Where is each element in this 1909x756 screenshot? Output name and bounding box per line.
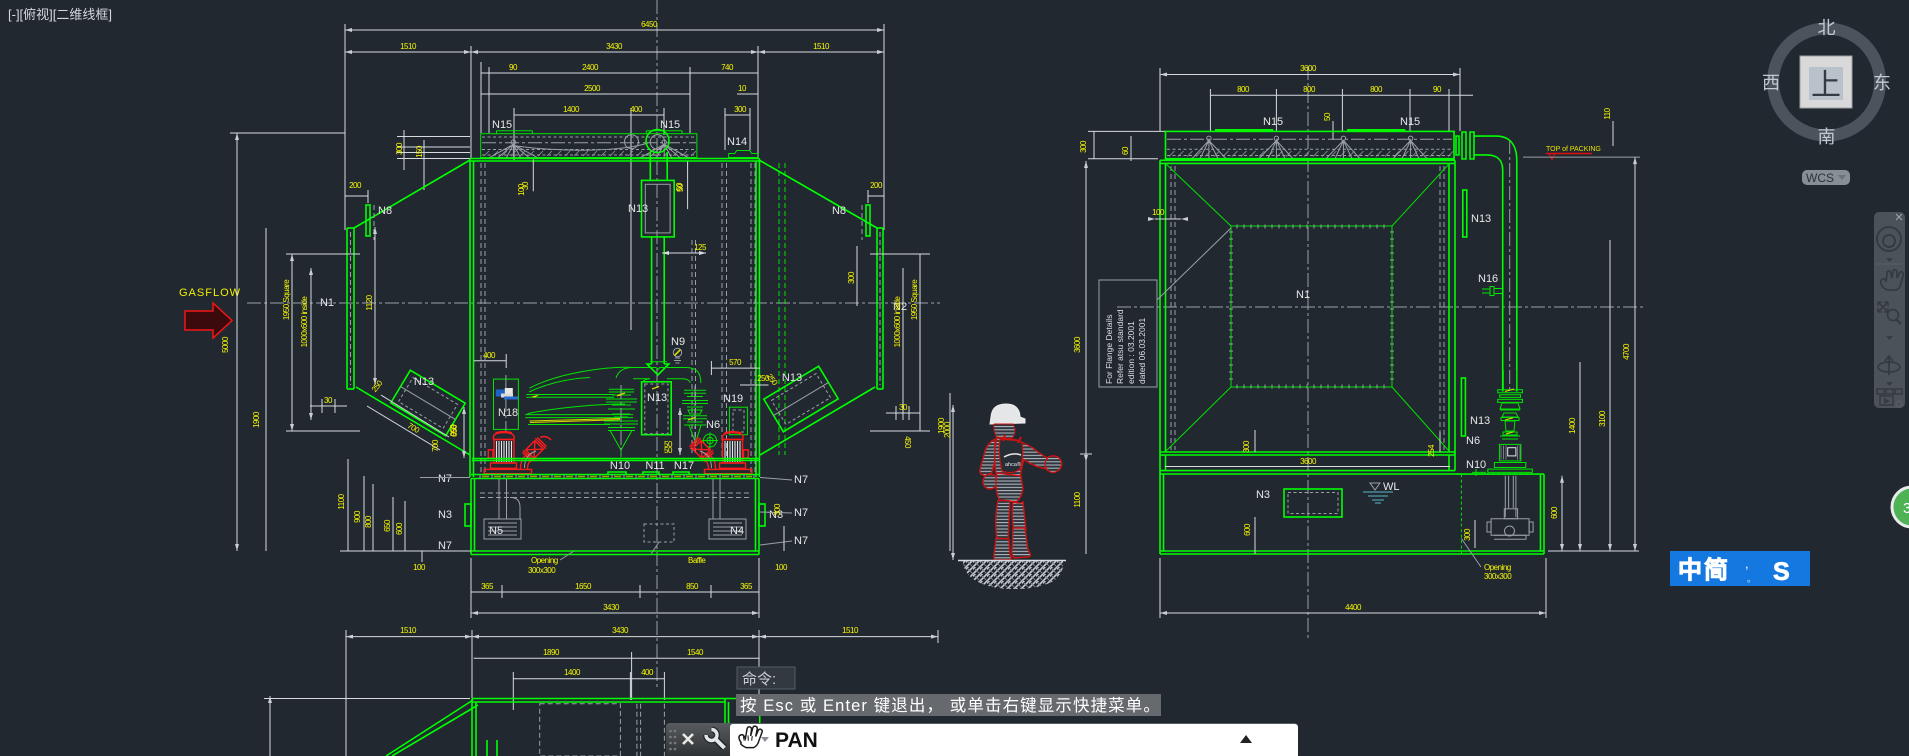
svg-text:30: 30 bbox=[521, 181, 530, 190]
svg-text:N7: N7 bbox=[794, 507, 808, 519]
svg-text:N7: N7 bbox=[794, 535, 808, 547]
svg-text:命令:: 命令: bbox=[742, 670, 776, 688]
svg-text:N13: N13 bbox=[647, 392, 667, 404]
svg-text:1540: 1540 bbox=[687, 648, 704, 657]
svg-text:N13: N13 bbox=[1471, 213, 1491, 225]
svg-text:Opening: Opening bbox=[1484, 563, 1511, 572]
svg-text:1120: 1120 bbox=[365, 294, 374, 310]
svg-text:N13: N13 bbox=[628, 203, 648, 215]
svg-text:1950 Square: 1950 Square bbox=[282, 279, 291, 320]
svg-text:3430: 3430 bbox=[612, 626, 629, 635]
svg-text:N10: N10 bbox=[610, 460, 630, 472]
svg-text:edition : 03.2001: edition : 03.2001 bbox=[1126, 321, 1136, 384]
svg-text:10: 10 bbox=[738, 84, 747, 93]
svg-text:800: 800 bbox=[1237, 85, 1250, 94]
svg-text:1100: 1100 bbox=[337, 493, 346, 509]
svg-text:300: 300 bbox=[734, 105, 747, 114]
svg-text:600: 600 bbox=[395, 522, 404, 535]
svg-text:650: 650 bbox=[450, 424, 459, 437]
svg-text:3430: 3430 bbox=[603, 603, 620, 612]
svg-text:按 Esc 或 Enter 键退出， 或单击右键显示快捷菜单: 按 Esc 或 Enter 键退出， 或单击右键显示快捷菜单。 bbox=[740, 696, 1161, 715]
svg-text:N7: N7 bbox=[438, 473, 452, 485]
svg-text:110: 110 bbox=[1603, 107, 1612, 119]
svg-text:N6: N6 bbox=[1466, 435, 1480, 447]
svg-text:300: 300 bbox=[395, 142, 404, 155]
svg-text:N15: N15 bbox=[660, 119, 680, 131]
svg-text:600: 600 bbox=[1550, 506, 1559, 519]
svg-text:3100: 3100 bbox=[1598, 410, 1607, 427]
svg-text:254: 254 bbox=[1427, 444, 1436, 457]
svg-text:400: 400 bbox=[630, 105, 643, 114]
svg-text:dated 06.03.2001: dated 06.03.2001 bbox=[1137, 318, 1147, 384]
svg-text:西: 西 bbox=[1762, 73, 1780, 93]
svg-text:N1: N1 bbox=[320, 297, 334, 309]
svg-text:Refer atsu standard: Refer atsu standard bbox=[1115, 309, 1125, 384]
svg-text:N5: N5 bbox=[489, 525, 503, 537]
svg-text:N13: N13 bbox=[1470, 415, 1490, 427]
svg-text:1950 Square: 1950 Square bbox=[910, 279, 919, 320]
svg-text:365: 365 bbox=[481, 582, 494, 591]
svg-text:600: 600 bbox=[1243, 523, 1252, 536]
svg-text:3: 3 bbox=[1903, 500, 1909, 517]
svg-text:1510: 1510 bbox=[400, 42, 417, 51]
svg-text:Baffle: Baffle bbox=[688, 556, 706, 565]
svg-text:Opening: Opening bbox=[531, 556, 558, 565]
svg-text:5000: 5000 bbox=[221, 336, 230, 353]
svg-text:800: 800 bbox=[364, 515, 373, 528]
svg-text:N4: N4 bbox=[730, 525, 744, 537]
svg-text:1890: 1890 bbox=[543, 648, 560, 657]
svg-text:S: S bbox=[1773, 558, 1790, 586]
svg-text:For Flange Details: For Flange Details bbox=[1104, 315, 1114, 384]
svg-text:1400: 1400 bbox=[563, 105, 580, 114]
svg-text:N7: N7 bbox=[794, 474, 808, 486]
svg-text:2500: 2500 bbox=[584, 84, 601, 93]
svg-text:N15: N15 bbox=[1263, 116, 1283, 128]
svg-text:北: 北 bbox=[1818, 18, 1836, 38]
svg-text:PAN: PAN bbox=[775, 729, 818, 752]
svg-text:1510: 1510 bbox=[842, 626, 859, 635]
svg-text:N3: N3 bbox=[1256, 489, 1270, 501]
svg-text:3430: 3430 bbox=[606, 42, 623, 51]
svg-text:,: , bbox=[1745, 556, 1749, 571]
svg-text:400: 400 bbox=[641, 668, 654, 677]
svg-text:3600: 3600 bbox=[1073, 336, 1082, 353]
svg-text:700: 700 bbox=[431, 439, 440, 452]
svg-text:90: 90 bbox=[1433, 85, 1442, 94]
svg-text:N8: N8 bbox=[832, 205, 846, 217]
svg-text:365: 365 bbox=[740, 582, 753, 591]
svg-text:30: 30 bbox=[324, 396, 333, 405]
svg-text:850: 850 bbox=[686, 582, 699, 591]
svg-text:1900: 1900 bbox=[252, 411, 261, 428]
svg-text:50: 50 bbox=[664, 446, 673, 455]
svg-text:900: 900 bbox=[353, 510, 362, 523]
svg-text:300: 300 bbox=[847, 271, 856, 284]
svg-text:50: 50 bbox=[675, 182, 684, 191]
svg-text:1400: 1400 bbox=[564, 668, 581, 677]
svg-text:N16: N16 bbox=[1478, 273, 1498, 285]
svg-text:50: 50 bbox=[1323, 112, 1332, 121]
svg-text:300: 300 bbox=[773, 503, 782, 516]
svg-text:650: 650 bbox=[383, 519, 392, 532]
svg-text:1400: 1400 bbox=[1568, 417, 1577, 434]
svg-text:300: 300 bbox=[1079, 140, 1088, 153]
svg-text:90: 90 bbox=[509, 63, 518, 72]
svg-text:TOP of PACKING: TOP of PACKING bbox=[1546, 146, 1601, 153]
svg-text:30: 30 bbox=[899, 403, 908, 412]
svg-text:3600: 3600 bbox=[1300, 457, 1317, 466]
svg-text:800: 800 bbox=[1303, 85, 1316, 94]
svg-text:200: 200 bbox=[349, 181, 362, 190]
svg-text:2400: 2400 bbox=[582, 63, 599, 72]
svg-text:。: 。 bbox=[1747, 574, 1756, 584]
svg-text:1650: 1650 bbox=[575, 582, 592, 591]
svg-text:100: 100 bbox=[413, 563, 426, 572]
svg-text:1000x600 inside: 1000x600 inside bbox=[300, 296, 309, 348]
svg-text:[-][俯视][二维线框]: [-][俯视][二维线框] bbox=[8, 7, 112, 22]
svg-text:N8: N8 bbox=[378, 205, 392, 217]
svg-text:800: 800 bbox=[1370, 85, 1383, 94]
svg-text:1100: 1100 bbox=[1073, 491, 1082, 507]
svg-text:125: 125 bbox=[694, 243, 707, 252]
svg-text:N18: N18 bbox=[498, 407, 518, 419]
svg-text:740: 740 bbox=[721, 63, 734, 72]
svg-text:400: 400 bbox=[483, 351, 496, 360]
svg-text:GASFLOW: GASFLOW bbox=[179, 287, 241, 299]
svg-text:1510: 1510 bbox=[400, 626, 417, 635]
svg-text:150: 150 bbox=[415, 145, 424, 158]
svg-text:N13: N13 bbox=[782, 372, 802, 384]
svg-text:WCS: WCS bbox=[1806, 171, 1834, 185]
svg-text:N17: N17 bbox=[674, 460, 694, 472]
svg-text:570: 570 bbox=[729, 358, 742, 367]
svg-text:2000: 2000 bbox=[943, 421, 952, 438]
svg-text:100: 100 bbox=[1152, 208, 1165, 217]
svg-text:上: 上 bbox=[1811, 69, 1841, 102]
svg-text:4400: 4400 bbox=[1345, 603, 1362, 612]
svg-text:250: 250 bbox=[757, 374, 770, 383]
svg-text:100: 100 bbox=[775, 563, 788, 572]
svg-text:1510: 1510 bbox=[813, 42, 830, 51]
svg-text:4700: 4700 bbox=[1622, 343, 1631, 360]
svg-text:300: 300 bbox=[1463, 528, 1472, 541]
svg-text:3600: 3600 bbox=[1300, 64, 1317, 73]
svg-text:N11: N11 bbox=[645, 460, 664, 472]
svg-text:N14: N14 bbox=[727, 136, 747, 148]
svg-text:N1: N1 bbox=[1296, 289, 1310, 301]
svg-text:南: 南 bbox=[1818, 127, 1836, 147]
svg-text:200: 200 bbox=[870, 181, 883, 190]
svg-text:60: 60 bbox=[1121, 146, 1130, 155]
svg-text:300x300: 300x300 bbox=[1484, 572, 1512, 581]
svg-text:ahca®: ahca® bbox=[1005, 461, 1021, 468]
svg-text:N3: N3 bbox=[438, 509, 452, 521]
svg-text:WL: WL bbox=[1383, 481, 1400, 493]
svg-text:东: 东 bbox=[1873, 73, 1891, 93]
svg-text:N6: N6 bbox=[706, 419, 720, 431]
svg-text:中简: 中简 bbox=[1678, 556, 1730, 584]
svg-text:N9: N9 bbox=[671, 336, 685, 348]
svg-text:450: 450 bbox=[903, 436, 912, 449]
svg-text:N7: N7 bbox=[438, 540, 452, 552]
svg-text:1000x600 inside: 1000x600 inside bbox=[893, 296, 902, 348]
svg-text:6450: 6450 bbox=[641, 20, 658, 29]
svg-text:N15: N15 bbox=[1400, 116, 1420, 128]
svg-text:300: 300 bbox=[1242, 440, 1251, 453]
svg-text:300x300: 300x300 bbox=[528, 566, 556, 575]
svg-text:N19: N19 bbox=[723, 393, 743, 405]
svg-text:N15: N15 bbox=[492, 119, 512, 131]
svg-text:N13: N13 bbox=[414, 376, 434, 388]
